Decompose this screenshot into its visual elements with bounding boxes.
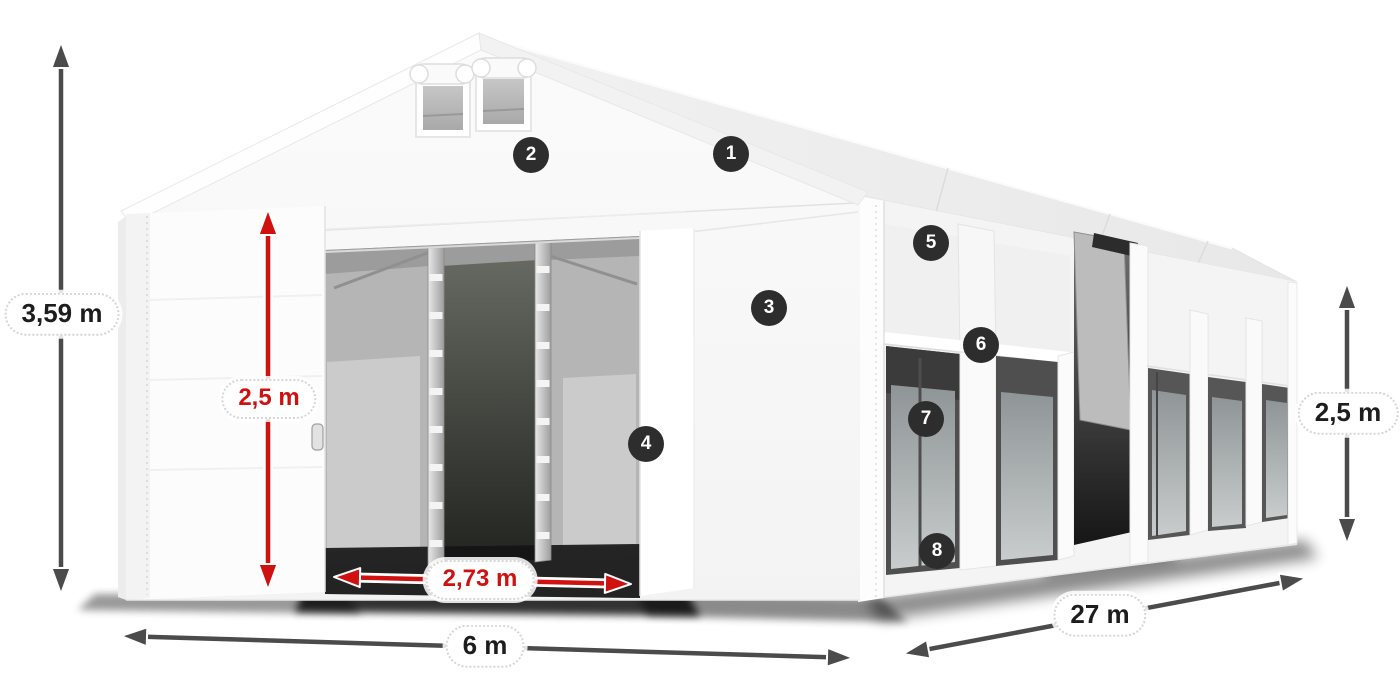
dimension-arrows (0, 0, 1400, 700)
dimension-arrow-ground-width (121, 627, 853, 666)
tent-diagram: 123456783,59 m2,5 m2,73 m6 m27 m2,5 m (0, 0, 1400, 700)
dimension-arrow-door-height (259, 209, 278, 590)
dimension-arrow-side-height (1338, 283, 1357, 544)
dimension-arrow-door-width (334, 568, 631, 593)
dimension-arrow-length (903, 573, 1306, 658)
dimension-arrow-total-height (52, 42, 71, 594)
